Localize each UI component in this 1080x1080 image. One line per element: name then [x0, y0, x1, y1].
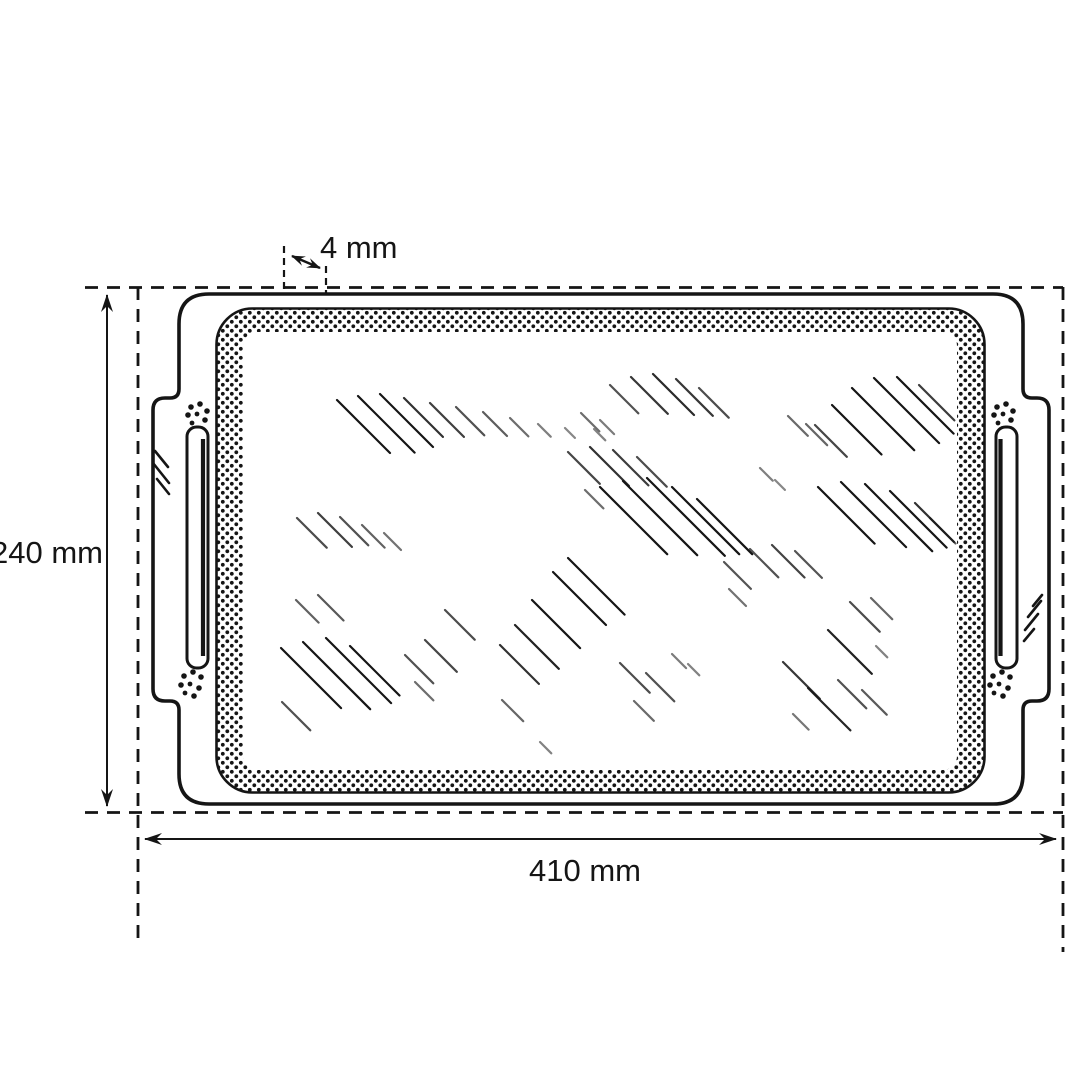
- drawing-canvas: 240 mm 410 mm 4 mm: [0, 0, 1080, 1080]
- width-dimension-label: 410 mm: [529, 853, 641, 888]
- tray-outline: [153, 294, 1049, 804]
- rim-dimension-arrow: [292, 256, 320, 268]
- tray-technical-drawing: 240 mm 410 mm 4 mm: [0, 0, 1080, 1080]
- rim-dimension-label: 4 mm: [320, 230, 398, 265]
- height-dimension-label: 240 mm: [0, 535, 103, 570]
